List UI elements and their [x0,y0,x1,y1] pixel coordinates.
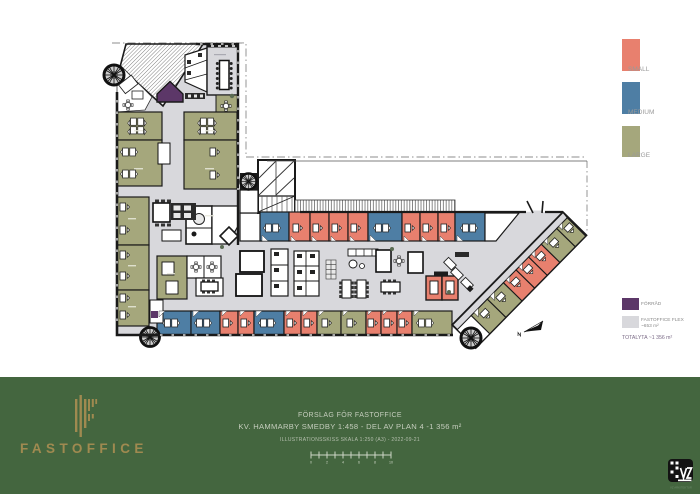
svg-text:SMALL: SMALL [628,66,650,73]
svg-text:MEDIUM: MEDIUM [628,109,654,116]
svg-text:LARGE: LARGE [628,152,651,159]
svg-text:6: 6 [358,461,360,465]
svg-text:VZ ARKITEKTUR: VZ ARKITEKTUR [670,486,692,490]
svg-text:2: 2 [326,461,328,465]
svg-text:4: 4 [342,461,344,465]
svg-text:~653 m²: ~653 m² [641,323,659,329]
svg-text:8: 8 [374,461,376,465]
svg-text:10: 10 [389,461,393,465]
svg-text:FÖRRÅD: FÖRRÅD [641,300,662,307]
svg-text:TOTALYTA ~1 356 m²: TOTALYTA ~1 356 m² [622,335,672,341]
svg-text:0: 0 [310,461,312,465]
svg-text:FASTOFFICE FLEX: FASTOFFICE FLEX [641,317,685,323]
